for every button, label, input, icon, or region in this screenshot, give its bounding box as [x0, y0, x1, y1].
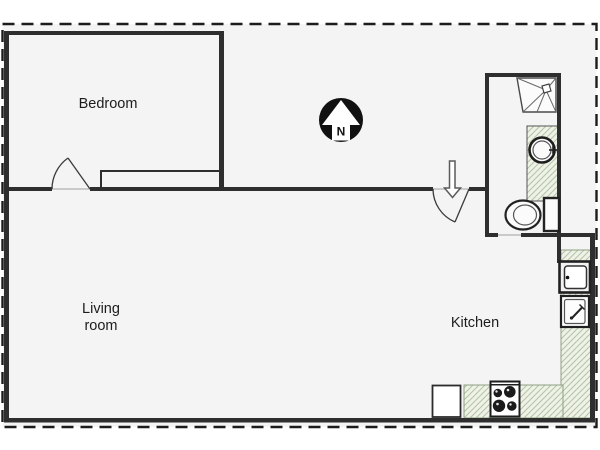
- wall-bottom-exterior: [4, 418, 595, 423]
- kitchen-sink-drain: [570, 316, 573, 319]
- compass-north-label: N: [337, 125, 346, 139]
- kitchen-label: Kitchen: [451, 315, 499, 331]
- dishwasher-icon: [433, 386, 461, 418]
- kitchen-sink-basin: [565, 300, 586, 324]
- wall-kitchen-stub: [557, 237, 561, 263]
- stove-burner: [504, 386, 516, 398]
- shower-pan: [517, 78, 556, 112]
- stove-burner: [507, 401, 517, 411]
- floor-plan-canvas: N: [0, 0, 600, 450]
- wall-bedroom-right: [219, 35, 224, 191]
- floor-plan: N: [0, 0, 600, 450]
- wall-main-left-segment: [9, 187, 52, 191]
- wall-east-link: [557, 233, 595, 237]
- stove-burner: [493, 400, 505, 412]
- wall-bathroom-top: [485, 73, 561, 77]
- shower-icon: [517, 78, 556, 112]
- wall-bathroom-bottom-right: [521, 233, 561, 237]
- stove-burner: [494, 389, 503, 398]
- compass-north-icon: N: [319, 98, 363, 142]
- kitchen-sink-icon: [561, 296, 589, 327]
- living-room-label-line2: room: [84, 318, 117, 334]
- stove-burner-highlight: [509, 403, 511, 405]
- toilet-icon: [506, 198, 560, 231]
- refrigerator-handle: [566, 276, 570, 280]
- bedroom-label: Bedroom: [79, 96, 138, 112]
- wall-bathroom-left: [485, 73, 489, 237]
- wall-bathroom-bottom-left: [485, 233, 498, 237]
- stove-burner-highlight: [496, 403, 499, 406]
- toilet-tank: [544, 198, 559, 231]
- shower-drain: [542, 84, 551, 93]
- stove-icon: [491, 382, 520, 417]
- stove-burner-highlight: [495, 390, 497, 392]
- wall-bedroom-top: [4, 31, 224, 35]
- refrigerator-icon: [560, 262, 591, 293]
- living-room-label-line1: Living: [82, 301, 120, 317]
- wall-left-exterior: [4, 31, 9, 421]
- property-boundary-dashed: [3, 24, 597, 427]
- stove-body: [491, 382, 520, 417]
- stove-burner-highlight: [507, 389, 510, 392]
